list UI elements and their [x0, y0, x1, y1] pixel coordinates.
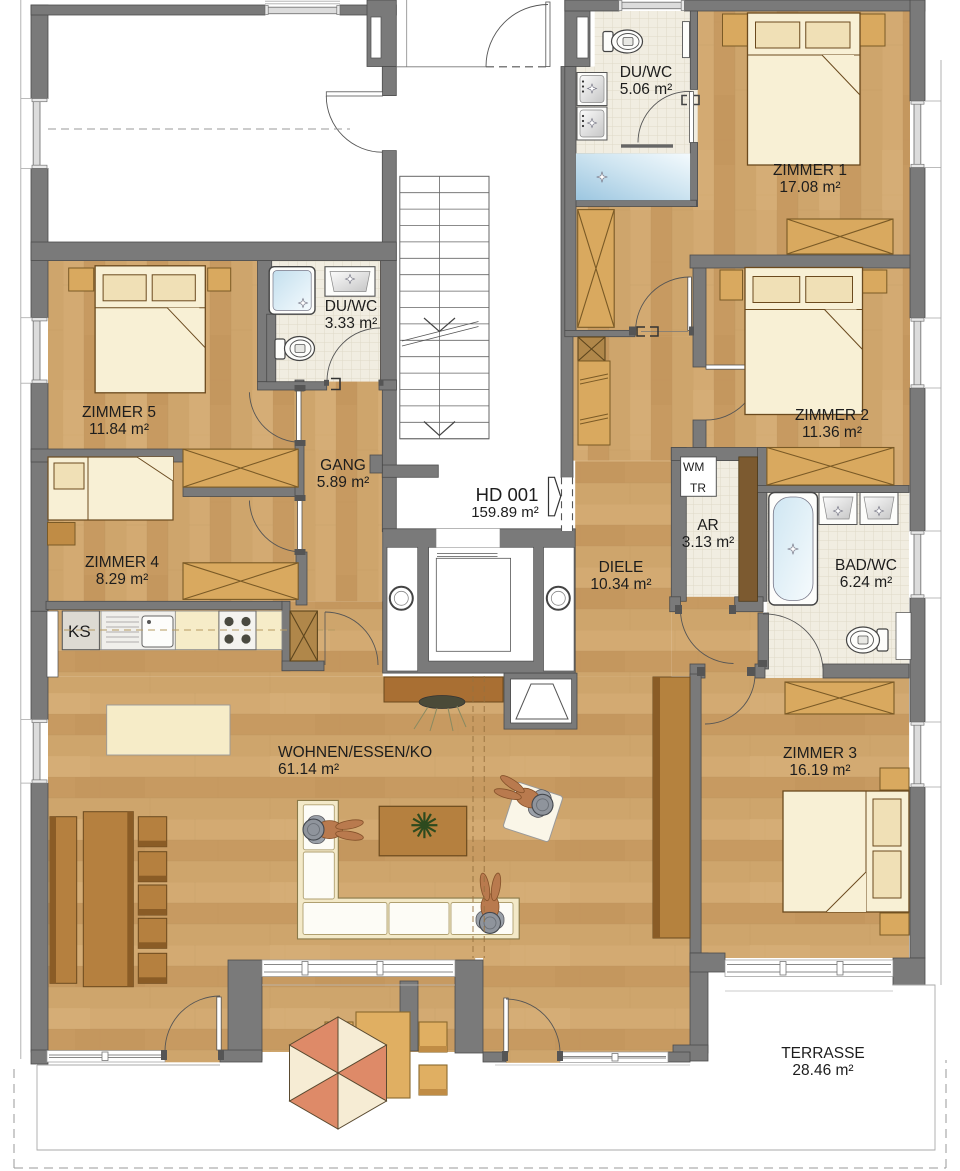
- svg-text:11.84 m²: 11.84 m²: [89, 421, 149, 438]
- svg-text:TR: TR: [690, 481, 706, 495]
- svg-text:DIELE: DIELE: [599, 559, 644, 576]
- svg-text:ZIMMER 5: ZIMMER 5: [82, 404, 156, 421]
- svg-text:5.89 m²: 5.89 m²: [317, 474, 370, 491]
- svg-text:DU/WC: DU/WC: [620, 64, 673, 81]
- svg-text:ZIMMER 2: ZIMMER 2: [795, 407, 869, 424]
- svg-text:159.89 m²: 159.89 m²: [471, 504, 539, 521]
- svg-text:WM: WM: [683, 460, 704, 474]
- svg-text:TERRASSE: TERRASSE: [781, 1045, 865, 1062]
- svg-text:5.06 m²: 5.06 m²: [620, 81, 673, 98]
- svg-text:3.13 m²: 3.13 m²: [682, 534, 735, 551]
- svg-text:ZIMMER 1: ZIMMER 1: [773, 162, 847, 179]
- svg-text:KS: KS: [68, 622, 91, 641]
- svg-text:6.24 m²: 6.24 m²: [840, 574, 893, 591]
- svg-text:DU/WC: DU/WC: [325, 298, 378, 315]
- svg-text:WOHNEN/ESSEN/KO: WOHNEN/ESSEN/KO: [278, 744, 432, 761]
- svg-text:HD 001: HD 001: [476, 484, 539, 505]
- svg-text:ZIMMER 4: ZIMMER 4: [85, 554, 159, 571]
- svg-text:28.46 m²: 28.46 m²: [792, 1062, 853, 1079]
- svg-text:16.19 m²: 16.19 m²: [789, 762, 850, 779]
- svg-text:AR: AR: [697, 517, 719, 534]
- svg-text:BAD/WC: BAD/WC: [835, 557, 897, 574]
- svg-text:8.29 m²: 8.29 m²: [96, 571, 149, 588]
- svg-text:10.34 m²: 10.34 m²: [590, 576, 651, 593]
- svg-text:17.08 m²: 17.08 m²: [779, 179, 840, 196]
- svg-text:ZIMMER 3: ZIMMER 3: [783, 745, 857, 762]
- svg-text:11.36 m²: 11.36 m²: [802, 424, 862, 441]
- svg-text:61.14 m²: 61.14 m²: [278, 761, 339, 778]
- svg-text:GANG: GANG: [320, 457, 366, 474]
- svg-text:3.33 m²: 3.33 m²: [325, 315, 378, 332]
